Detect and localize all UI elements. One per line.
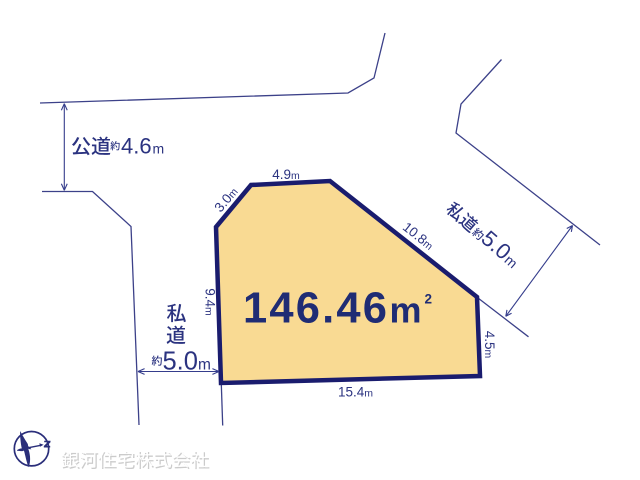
svg-text:9.4m: 9.4m xyxy=(203,288,218,316)
svg-text:4.9m: 4.9m xyxy=(272,167,300,182)
svg-text:4.5m: 4.5m xyxy=(482,331,497,359)
svg-text:15.4m: 15.4m xyxy=(338,385,373,400)
svg-text:m: m xyxy=(153,141,165,157)
svg-text:m: m xyxy=(198,357,211,374)
svg-text:5.0: 5.0 xyxy=(163,348,198,376)
svg-text:m: m xyxy=(390,290,422,331)
svg-text:2: 2 xyxy=(425,291,433,306)
svg-text:4.6: 4.6 xyxy=(121,134,152,159)
svg-text:146.46: 146.46 xyxy=(243,285,387,333)
